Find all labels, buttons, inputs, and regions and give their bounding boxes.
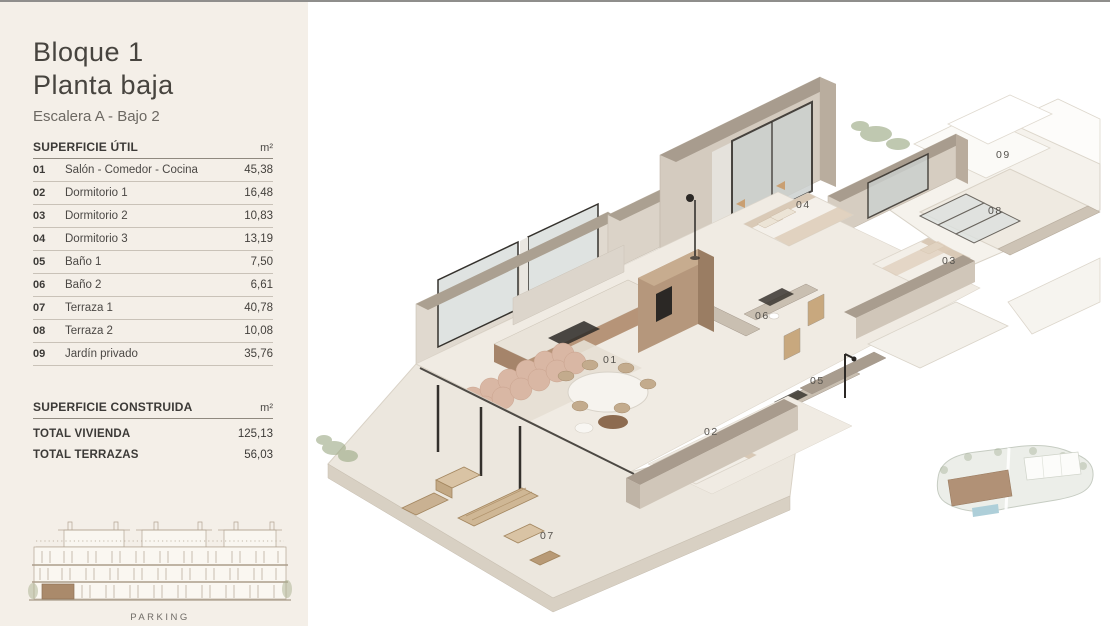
room-label-01: 01 <box>603 354 618 366</box>
page-title-line1: Bloque 1 <box>33 36 174 69</box>
row-num: 07 <box>33 302 65 314</box>
total-label: TOTAL TERRAZAS <box>33 449 244 461</box>
table-row-03: 03 Dormitorio 2 10,83 <box>33 205 273 228</box>
row-name: Baño 1 <box>65 256 251 268</box>
built-table-header-row: SUPERFICIE CONSTRUIDA m² <box>33 400 273 419</box>
parking-caption: PARKING <box>28 612 292 623</box>
side-table <box>575 423 593 433</box>
garden-hedge <box>851 121 910 150</box>
row-name: Baño 2 <box>65 279 251 291</box>
built-table-unit: m² <box>260 402 273 414</box>
building-elevation: PARKING <box>28 510 292 623</box>
room-label-09: 09 <box>996 149 1011 161</box>
row-value: 40,78 <box>244 302 273 314</box>
highlighted-unit <box>42 584 74 599</box>
table-row-01: 01 Salón - Comedor - Cocina 45,38 <box>33 159 273 182</box>
row-name: Terraza 1 <box>65 302 244 314</box>
row-value: 6,61 <box>251 279 273 291</box>
surface-table-header-row: SUPERFICIE ÚTIL m² <box>33 140 273 159</box>
toilet <box>769 313 779 319</box>
row-value: 10,83 <box>244 210 273 222</box>
page-subtitle: Escalera A - Bajo 2 <box>33 108 174 125</box>
room-label-05: 05 <box>810 375 825 387</box>
row-value: 45,38 <box>244 164 273 176</box>
row-num: 09 <box>33 348 65 360</box>
surface-table-title: SUPERFICIE ÚTIL <box>33 140 138 154</box>
total-terrazas-row: TOTAL TERRAZAS 56,03 <box>33 444 273 465</box>
row-num: 04 <box>33 233 65 245</box>
table-row-05: 05 Baño 1 7,50 <box>33 251 273 274</box>
table-row-04: 04 Dormitorio 3 13,19 <box>33 228 273 251</box>
row-value: 35,76 <box>244 348 273 360</box>
row-num: 06 <box>33 279 65 291</box>
total-label: TOTAL VIVIENDA <box>33 428 238 440</box>
title-block: Bloque 1 Planta baja Escalera A - Bajo 2 <box>33 36 174 125</box>
row-name: Jardín privado <box>65 348 244 360</box>
room-label-07: 07 <box>540 530 555 542</box>
table-row-09: 09 Jardín privado 35,76 <box>33 343 273 366</box>
coffee-table <box>598 415 628 429</box>
surface-table-unit: m² <box>260 142 273 154</box>
room-label-06: 06 <box>755 310 770 322</box>
superficie-construida-table: SUPERFICIE CONSTRUIDA m² TOTAL VIVIENDA … <box>33 400 273 465</box>
total-value: 125,13 <box>238 428 273 440</box>
tree <box>28 583 38 599</box>
table-row-07: 07 Terraza 1 40,78 <box>33 297 273 320</box>
building-elevation-drawing <box>28 510 292 602</box>
isometric-floorplan: 01 02 03 04 05 06 07 08 09 <box>308 2 1110 626</box>
row-value: 16,48 <box>244 187 273 199</box>
row-num: 02 <box>33 187 65 199</box>
row-name: Dormitorio 3 <box>65 233 244 245</box>
superficie-util-table: SUPERFICIE ÚTIL m² 01 Salón - Comedor - … <box>33 140 273 366</box>
row-num: 05 <box>33 256 65 268</box>
room-label-08: 08 <box>988 205 1003 217</box>
room-label-04: 04 <box>796 199 811 211</box>
row-name: Dormitorio 2 <box>65 210 244 222</box>
top-border <box>0 0 1110 2</box>
total-vivienda-row: TOTAL VIVIENDA 125,13 <box>33 423 273 444</box>
row-name: Terraza 2 <box>65 325 244 337</box>
row-num: 01 <box>33 164 65 176</box>
site-locator-map <box>937 445 1093 517</box>
row-value: 13,19 <box>244 233 273 245</box>
built-table-title: SUPERFICIE CONSTRUIDA <box>33 400 193 414</box>
table-row-08: 08 Terraza 2 10,08 <box>33 320 273 343</box>
row-num: 08 <box>33 325 65 337</box>
row-num: 03 <box>33 210 65 222</box>
room-label-03: 03 <box>942 255 957 267</box>
row-name: Salón - Comedor - Cocina <box>65 164 244 176</box>
row-value: 10,08 <box>244 325 273 337</box>
table-row-06: 06 Baño 2 6,61 <box>33 274 273 297</box>
room-label-02: 02 <box>704 426 719 438</box>
floorplan-area: 01 02 03 04 05 06 07 08 09 <box>308 2 1110 626</box>
row-name: Dormitorio 1 <box>65 187 244 199</box>
tree <box>282 580 292 598</box>
table-row-02: 02 Dormitorio 1 16,48 <box>33 182 273 205</box>
row-value: 7,50 <box>251 256 273 268</box>
brochure-page: Bloque 1 Planta baja Escalera A - Bajo 2… <box>0 0 1110 626</box>
elevation-roof <box>58 522 282 547</box>
page-title-line2: Planta baja <box>33 69 174 102</box>
sidebar: Bloque 1 Planta baja Escalera A - Bajo 2… <box>0 2 308 626</box>
total-value: 56,03 <box>244 449 273 461</box>
